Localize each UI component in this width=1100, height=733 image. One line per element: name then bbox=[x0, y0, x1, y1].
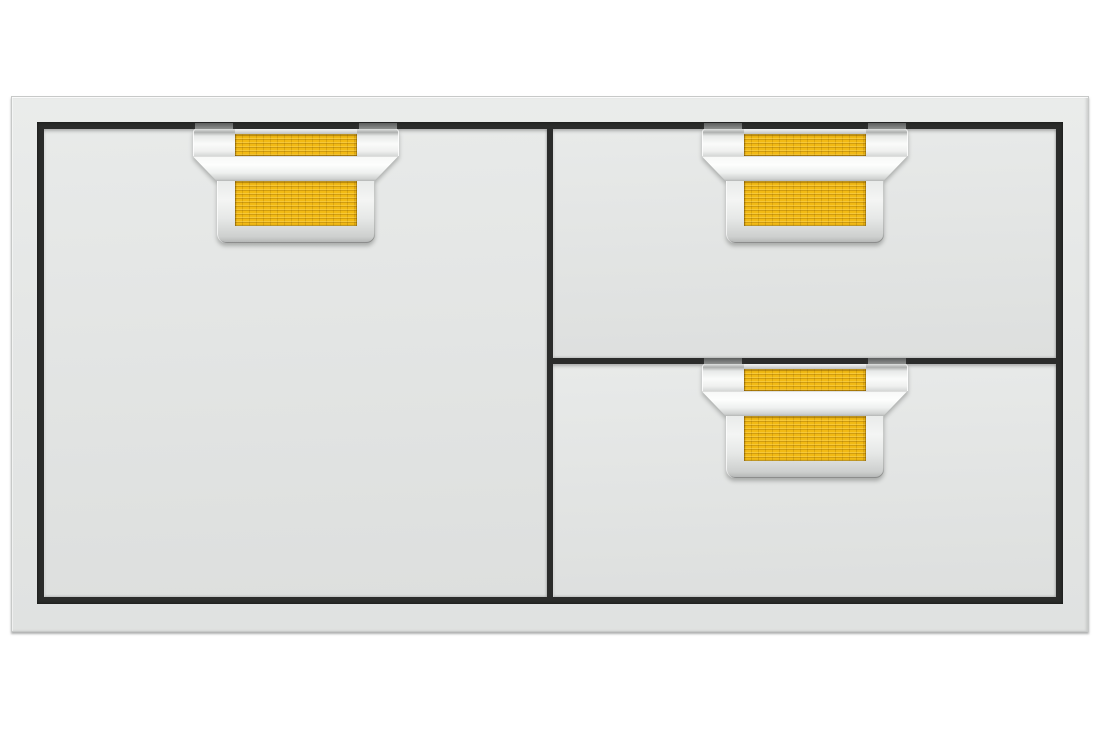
handle-wing-right bbox=[357, 129, 399, 156]
handle-wing-right bbox=[866, 129, 908, 156]
product-image bbox=[0, 0, 1100, 733]
handle-wing-left bbox=[193, 129, 235, 156]
handle-accent-panel bbox=[744, 181, 866, 226]
handle-wing-left bbox=[702, 364, 744, 391]
access-door bbox=[44, 129, 547, 597]
handle-accent-strip bbox=[235, 134, 357, 156]
handle-grip-bar bbox=[702, 391, 908, 416]
handle-accent-panel bbox=[235, 181, 357, 226]
door-handle bbox=[193, 123, 399, 243]
drawer-bottom-handle bbox=[702, 358, 908, 478]
handle-lower-frame bbox=[217, 181, 375, 243]
handle-accent-strip bbox=[744, 369, 866, 391]
drawer-top bbox=[553, 129, 1056, 358]
frame-recess bbox=[37, 122, 1063, 604]
handle-grip-bar bbox=[702, 156, 908, 181]
handle-lower-frame bbox=[726, 181, 884, 243]
handle-accent-panel bbox=[744, 416, 866, 461]
handle-wing-left bbox=[702, 129, 744, 156]
handle-wing-right bbox=[866, 364, 908, 391]
drawer-top-handle bbox=[702, 123, 908, 243]
drawer-bottom bbox=[553, 364, 1056, 597]
handle-grip-bar bbox=[193, 156, 399, 181]
handle-accent-strip bbox=[744, 134, 866, 156]
handle-lower-frame bbox=[726, 416, 884, 478]
storage-combo-frame bbox=[11, 96, 1089, 632]
